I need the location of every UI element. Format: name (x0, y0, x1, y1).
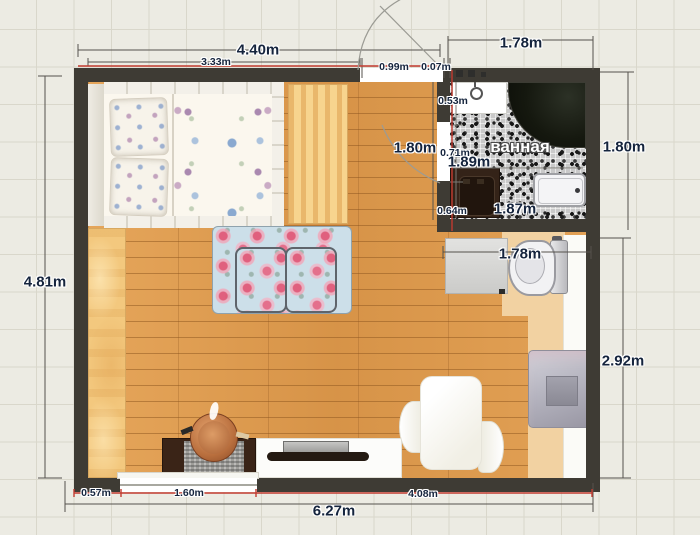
wall-top[interactable] (74, 68, 360, 82)
dimension-label[interactable]: 1.87m (494, 201, 537, 218)
armchair-seat (546, 376, 578, 406)
wall-left[interactable] (74, 68, 88, 492)
tv-base (267, 452, 369, 461)
sofa-seat-cushion (235, 247, 287, 313)
dimension-label[interactable]: 1.80m (603, 139, 646, 156)
dimension-label[interactable]: 1.78m (500, 35, 543, 52)
window-frame-line (120, 484, 257, 486)
dimension-label[interactable]: 1.80m (394, 140, 437, 157)
dimension-label[interactable]: 0.99m (379, 61, 409, 73)
bed-frame-right (272, 94, 284, 216)
sofa[interactable] (212, 226, 352, 314)
bed-headboard (88, 84, 105, 226)
bed-frame-top (104, 82, 284, 94)
wall-fixture (481, 72, 486, 77)
room-name-label[interactable]: ванная (490, 137, 550, 157)
dimension-label[interactable]: 4.40m (237, 42, 280, 59)
bed-duvet-seam (172, 94, 174, 216)
bathtub[interactable] (533, 173, 586, 207)
dimension-label[interactable]: 6.27m (313, 503, 356, 520)
cabinet-handle (499, 289, 505, 294)
wall-fixture (468, 70, 475, 77)
pillow (109, 97, 169, 157)
dimension-label[interactable]: 4.81m (24, 274, 67, 291)
wall-bathroom-bottom[interactable] (437, 219, 600, 232)
sofa-seat-cushion (285, 247, 337, 313)
wall-bathroom-top[interactable] (443, 68, 600, 82)
dimension-label[interactable]: 0.64m (437, 205, 467, 217)
armchair[interactable] (528, 350, 594, 428)
wall-fixture (456, 70, 463, 77)
wall-right[interactable] (586, 68, 600, 492)
dining-table[interactable] (420, 376, 482, 470)
dimension-label[interactable]: 1.60m (174, 487, 204, 499)
pot-lid (198, 421, 230, 454)
floor-plan-canvas: 4.40m 3.33m 0.99m 0.07m 1.78m 1.80m 1.80… (0, 0, 700, 535)
dimension-label[interactable]: 1.89m (448, 154, 491, 171)
wardrobe-top[interactable] (288, 84, 348, 224)
washer-control (477, 179, 484, 184)
washer-control (463, 179, 470, 184)
bathtub-drain (575, 188, 580, 193)
cooking-pot[interactable] (190, 413, 238, 462)
dimension-label[interactable]: 0.57m (81, 487, 111, 499)
dimension-label[interactable]: 0.07m (421, 61, 451, 73)
dimension-label[interactable]: 1.78m (499, 246, 542, 263)
dimension-label[interactable]: 4.08m (408, 488, 438, 500)
dimension-label[interactable]: 0.53m (438, 95, 468, 107)
dimension-label[interactable]: 3.33m (201, 56, 231, 68)
faucet-icon (470, 87, 483, 100)
dimension-label[interactable]: 2.92m (602, 353, 645, 370)
double-bed[interactable] (88, 82, 284, 228)
wardrobe-left[interactable] (88, 228, 126, 478)
pillow (109, 157, 169, 217)
